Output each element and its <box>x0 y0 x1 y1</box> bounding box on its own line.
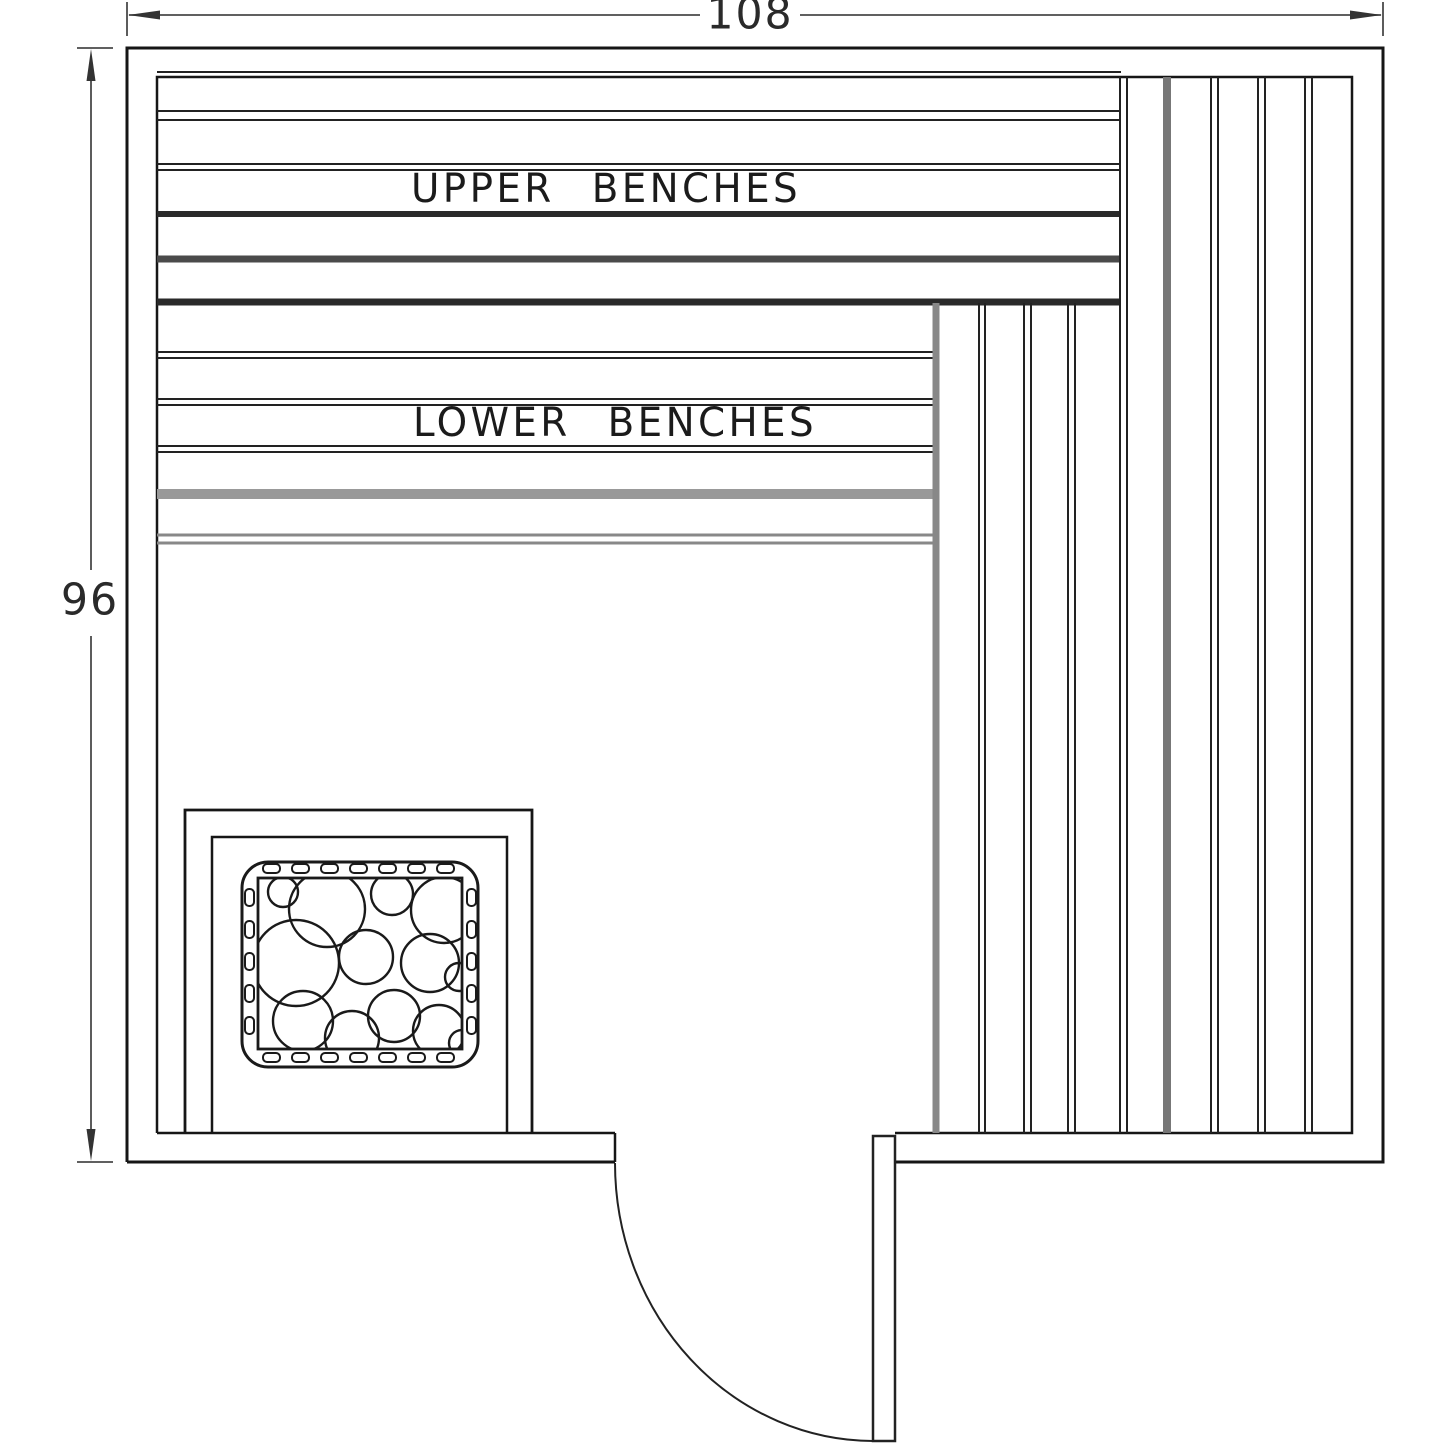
arrow-right-icon <box>1350 11 1382 20</box>
heater <box>185 810 532 1133</box>
plank-line <box>1211 77 1218 1133</box>
plank-line <box>157 111 1121 120</box>
plank-line <box>1258 77 1265 1133</box>
upper-bench-right <box>1120 77 1312 1133</box>
door-swing-arc <box>615 1163 873 1441</box>
width-dimension-label: 108 <box>706 0 793 39</box>
lower-benches-label: LOWER BENCHES <box>413 400 817 446</box>
plank-line <box>1305 77 1312 1133</box>
arrow-left-icon <box>128 11 160 20</box>
plank-line <box>1024 303 1031 1133</box>
heater-rocks <box>253 871 477 1065</box>
arrow-down-icon <box>87 1129 96 1161</box>
bench-front-edge <box>1120 77 1127 1133</box>
lower-bench-right <box>936 303 1075 1133</box>
plank-line <box>157 446 934 452</box>
lower-bench-top <box>157 352 934 543</box>
heater-guard-outer <box>185 810 532 1133</box>
arrow-up-icon <box>87 49 96 81</box>
door-leaf <box>873 1136 895 1441</box>
height-dimension-label: 96 <box>61 574 119 625</box>
plank-line <box>1068 303 1075 1133</box>
sauna-floor-plan <box>0 0 1445 1445</box>
bench-front-edge <box>157 535 934 543</box>
plank-line <box>157 352 934 358</box>
upper-benches-label: UPPER BENCHES <box>411 166 801 212</box>
door <box>615 1136 895 1441</box>
plank-line <box>979 303 985 1133</box>
